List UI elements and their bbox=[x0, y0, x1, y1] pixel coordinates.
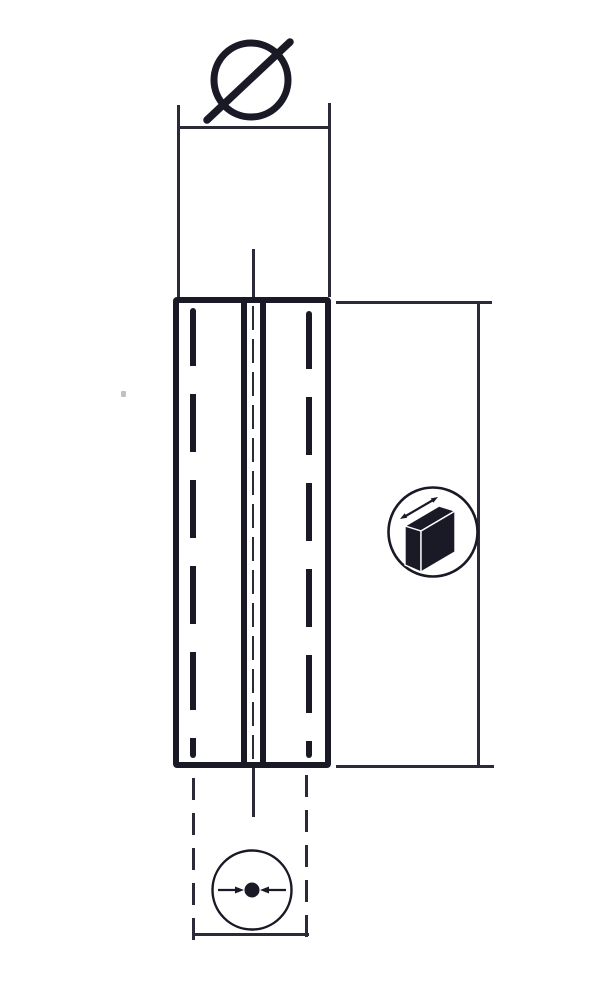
center-axis-line-top bbox=[252, 249, 255, 297]
outer-dia-dimension-line bbox=[178, 126, 330, 129]
outer-dia-extension-line-right bbox=[328, 103, 331, 297]
hidden-inner-dia-line-left bbox=[190, 308, 196, 758]
slot-edge-line-left bbox=[241, 303, 247, 762]
center-axis-dashed-line bbox=[252, 306, 254, 759]
inner-dia-extension-line-left bbox=[192, 778, 195, 945]
technical-drawing-canvas bbox=[0, 0, 600, 1000]
outer-dia-extension-line-left bbox=[177, 105, 180, 297]
pin-body-outline bbox=[173, 297, 331, 768]
diameter-symbol-icon bbox=[200, 36, 296, 126]
inner-dia-extension-line-right bbox=[305, 775, 308, 945]
length-box-icon bbox=[385, 484, 481, 580]
hidden-inner-dia-line-right bbox=[306, 311, 312, 758]
length-extension-line-bottom bbox=[336, 765, 494, 768]
inner-dia-dimension-line bbox=[192, 933, 309, 936]
length-extension-line-top bbox=[336, 301, 492, 304]
scan-artifact-dot bbox=[121, 391, 126, 397]
center-axis-line-bottom bbox=[252, 768, 255, 817]
inner-diameter-dot-icon bbox=[209, 847, 295, 933]
slot-edge-line-right bbox=[260, 303, 266, 762]
